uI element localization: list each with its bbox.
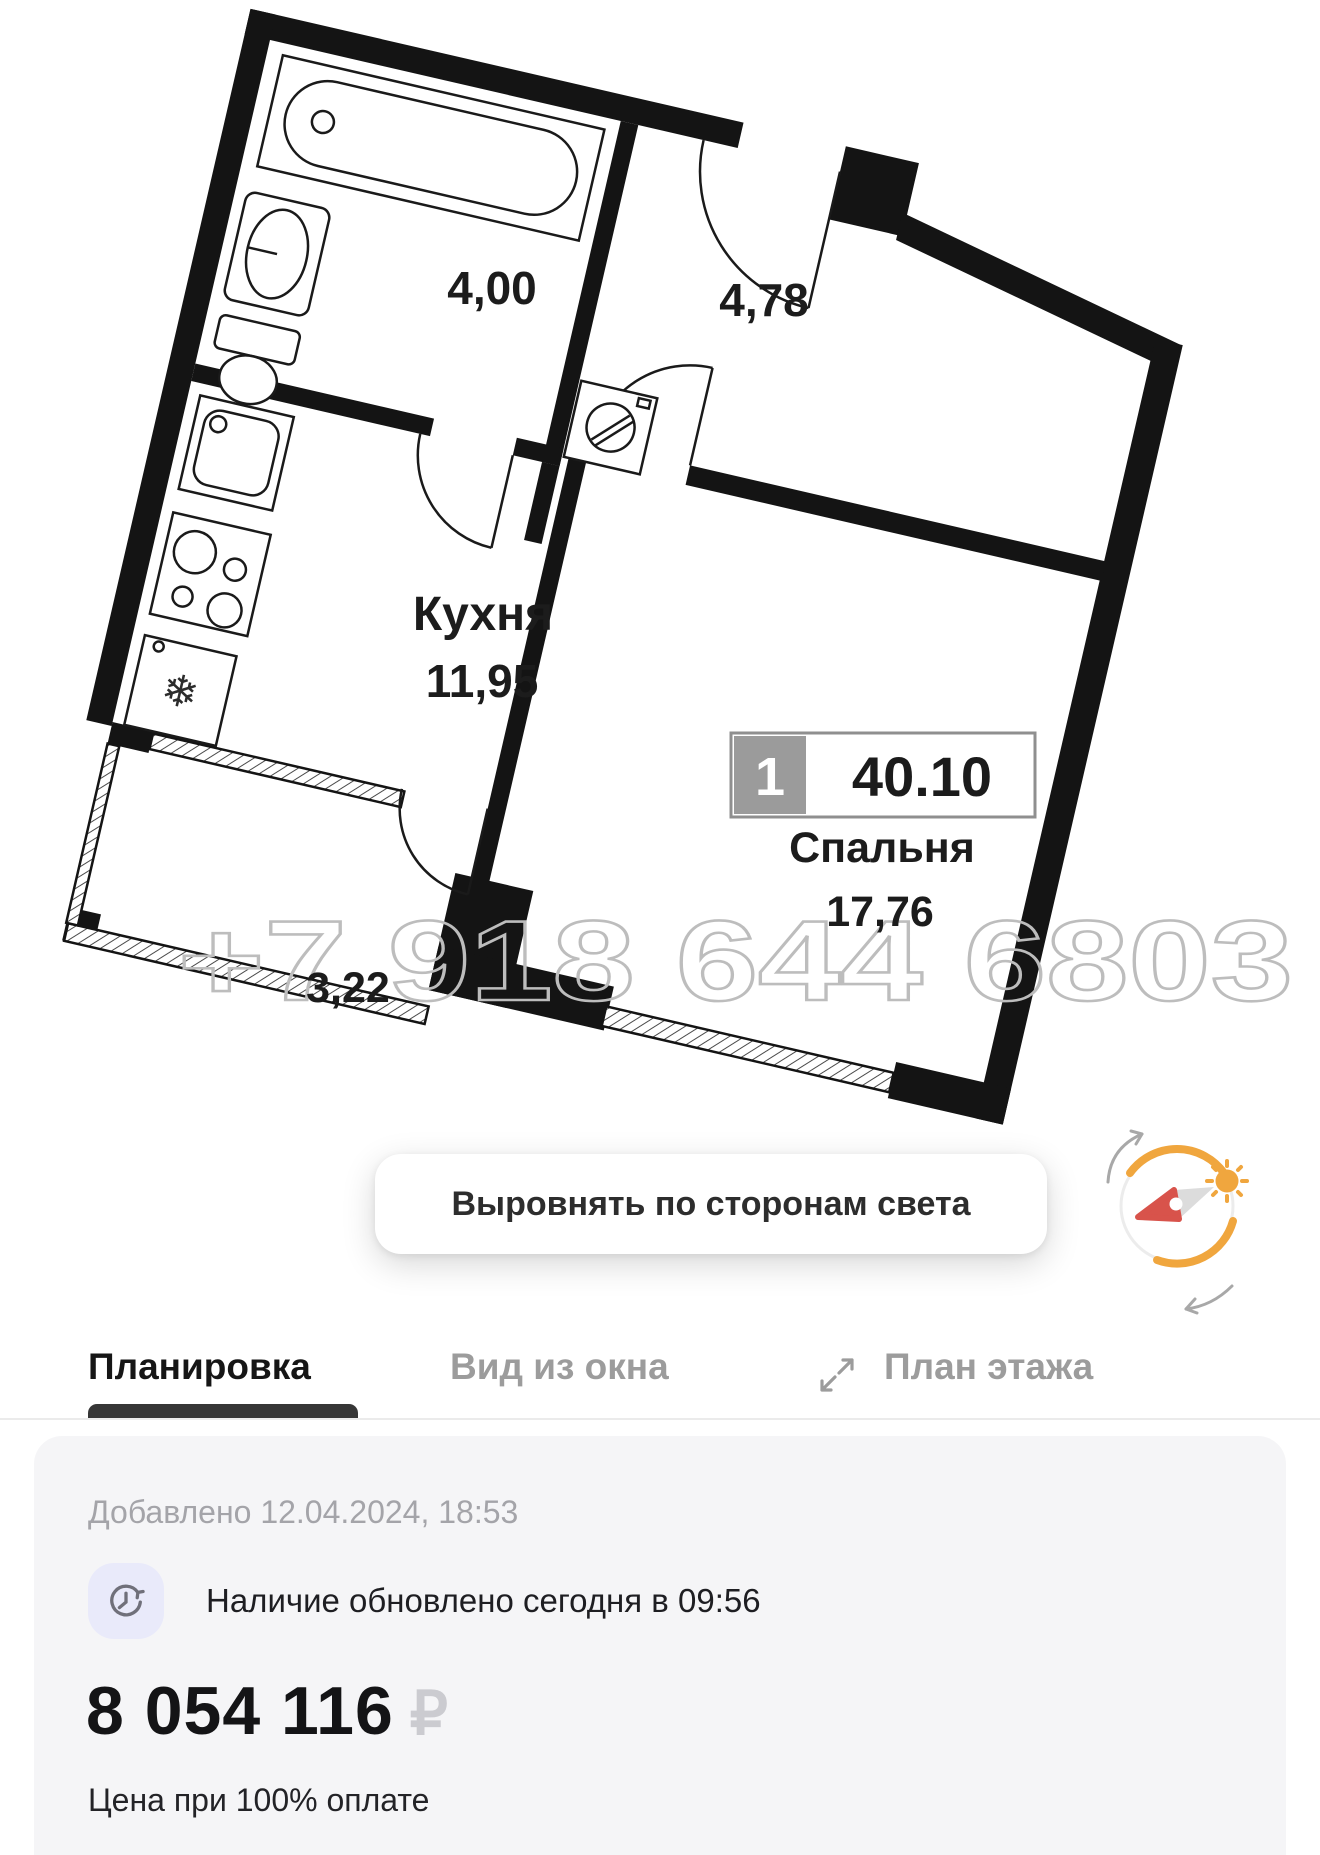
price-value: 8 054 116 [86, 1672, 394, 1750]
history-clock-icon [104, 1579, 148, 1623]
availability-row: Наличие обновлено сегодня в 09:56 [88, 1563, 761, 1639]
price-note: Цена при 100% оплате [88, 1782, 429, 1819]
bedroom-area-label: 17,76 [826, 888, 934, 936]
badge-total-area: 40.10 [852, 745, 992, 808]
ruble-sign: ₽ [410, 1679, 448, 1749]
sun-icon [1207, 1161, 1247, 1201]
apartment-badge: 1 40.10 [731, 733, 1035, 817]
kitchen-area-label: 11,95 [426, 655, 539, 707]
tab-vid-iz-okna[interactable]: Вид из окна [450, 1346, 669, 1388]
badge-rooms-count: 1 [755, 747, 785, 807]
compass-sun-icon[interactable] [1090, 1120, 1310, 1340]
hall-area-label: 4,78 [719, 274, 809, 326]
bathroom-area-label: 4,00 [447, 262, 537, 314]
added-date-text: Добавлено 12.04.2024, 18:53 [88, 1494, 518, 1531]
bedroom-name-label: Спальня [789, 824, 975, 872]
tab-plan-etazha[interactable]: План этажа [884, 1346, 1093, 1388]
tab-planirovka[interactable]: Планировка [88, 1346, 311, 1388]
availability-text: Наличие обновлено сегодня в 09:56 [206, 1582, 761, 1620]
active-tab-indicator [88, 1404, 358, 1419]
listing-info-card: Добавлено 12.04.2024, 18:53 Наличие обно… [34, 1436, 1286, 1855]
tabs-divider [0, 1418, 1320, 1420]
align-to-compass-button[interactable]: Выровнять по сторонам света [375, 1154, 1047, 1254]
expand-icon [812, 1350, 862, 1400]
price-row: 8 054 116 ₽ [86, 1672, 448, 1750]
balcony-area-label: 3,22 [306, 964, 390, 1012]
kitchen-name-label: Кухня [413, 588, 553, 641]
floor-plan[interactable]: ❄ +7 918 644 6803 4,00 4,78 Кухня 11,95 … [0, 0, 1320, 1135]
history-clock-icon-wrap [88, 1563, 164, 1639]
